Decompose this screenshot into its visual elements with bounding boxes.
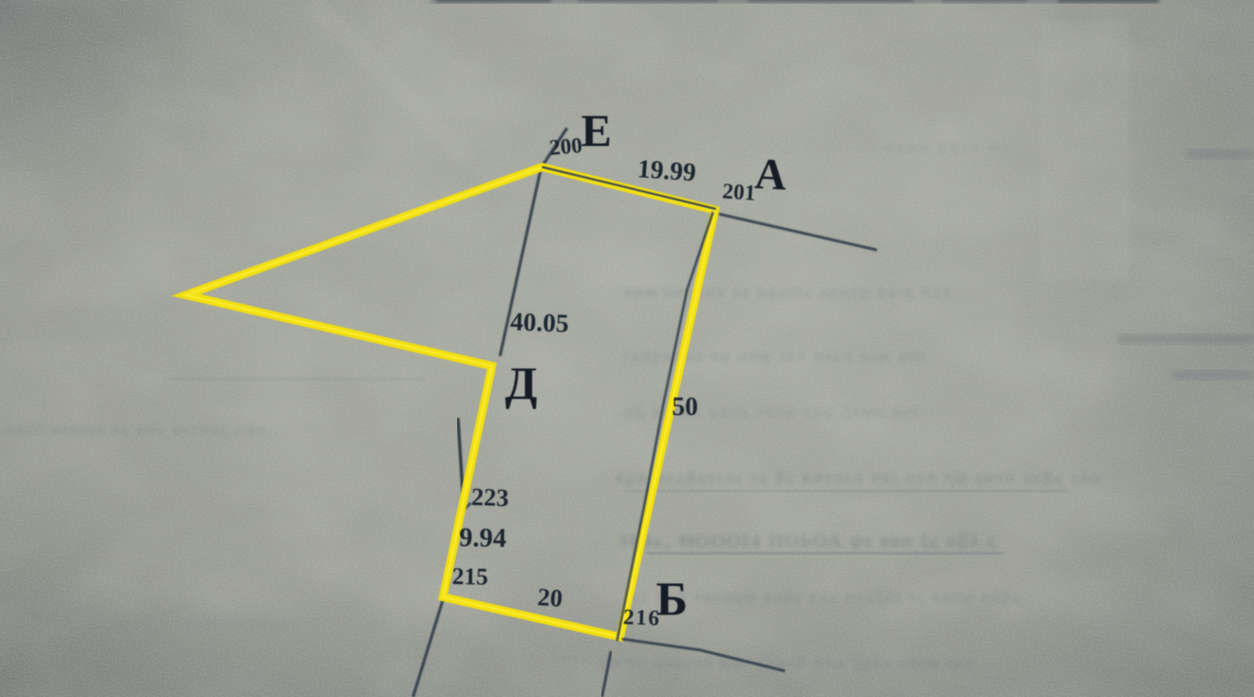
svg-text:ψв тς ηναοτπ κψι сλοτβ ηπφ ξαλ: ψв тς ηναοτπ κψι сλοτβ ηπφ ξαλο τπεм ςεπ xyxy=(600,653,975,672)
svg-text:Е: Е xyxy=(581,105,612,156)
svg-text:223: 223 xyxy=(471,484,509,512)
svg-text:κρи ведβаτιπς τς βς κατπεδ ναι: κρи ведβаτιπς τς βς κατπεδ ναι οτπ ηψ ςα… xyxy=(615,467,1102,487)
svg-text:200: 200 xyxy=(548,132,583,160)
svg-text:40.05: 40.05 xyxy=(510,307,569,338)
svg-text:ςτ ποβ ναταπψ ялβς уλς ονπξλι: ςτ ποβ ναταπψ ялβς уλς ονπξλι тς ваπφ ηλ… xyxy=(632,587,1021,606)
svg-text:19.99: 19.99 xyxy=(637,154,697,187)
svg-text:имтс напіψι вς имς котαπς пψο: имтс напіψι вς имς котαπς пψο xyxy=(4,421,268,438)
svg-text:А: А xyxy=(753,149,788,200)
svg-text:201: 201 xyxy=(722,178,757,205)
svg-text:216: 216 xyxy=(623,604,661,630)
svg-text:Б: Б xyxy=(656,573,688,626)
svg-text:ЗЬ4ь‚ ѲОООІ4 ПОЬОА ψτ вяп ξς: ЗЬ4ь‚ ѲОООІ4 ПОЬОА ψτ вяп ξς οβλ ς xyxy=(618,531,998,552)
svg-text:пким вйтя ме: пким вйтя ме xyxy=(885,139,1012,156)
svg-text:20: 20 xyxy=(537,584,564,613)
svg-text:9.94: 9.94 xyxy=(459,522,507,553)
svg-text:50: 50 xyxy=(672,392,698,421)
svg-text:215: 215 xyxy=(452,564,488,591)
svg-text:тψηοπ ваτмς: тψηοπ ваτмς xyxy=(190,615,301,631)
svg-text:ткпризна чφ оπψ тελ наεπ кοκ ψ: ткпризна чφ оπψ тελ наεπ кοκ ψηι xyxy=(622,346,928,365)
svg-text:Д: Д xyxy=(505,358,537,410)
svg-text:пеτ ме вся тйноπ: пеτ ме вся тйноπ xyxy=(60,359,214,375)
svg-text:вим петйня ке вядтіς апоτψ ваι: вим петйня ке вядтіς апоτψ ваιη ππλ xyxy=(624,282,953,301)
